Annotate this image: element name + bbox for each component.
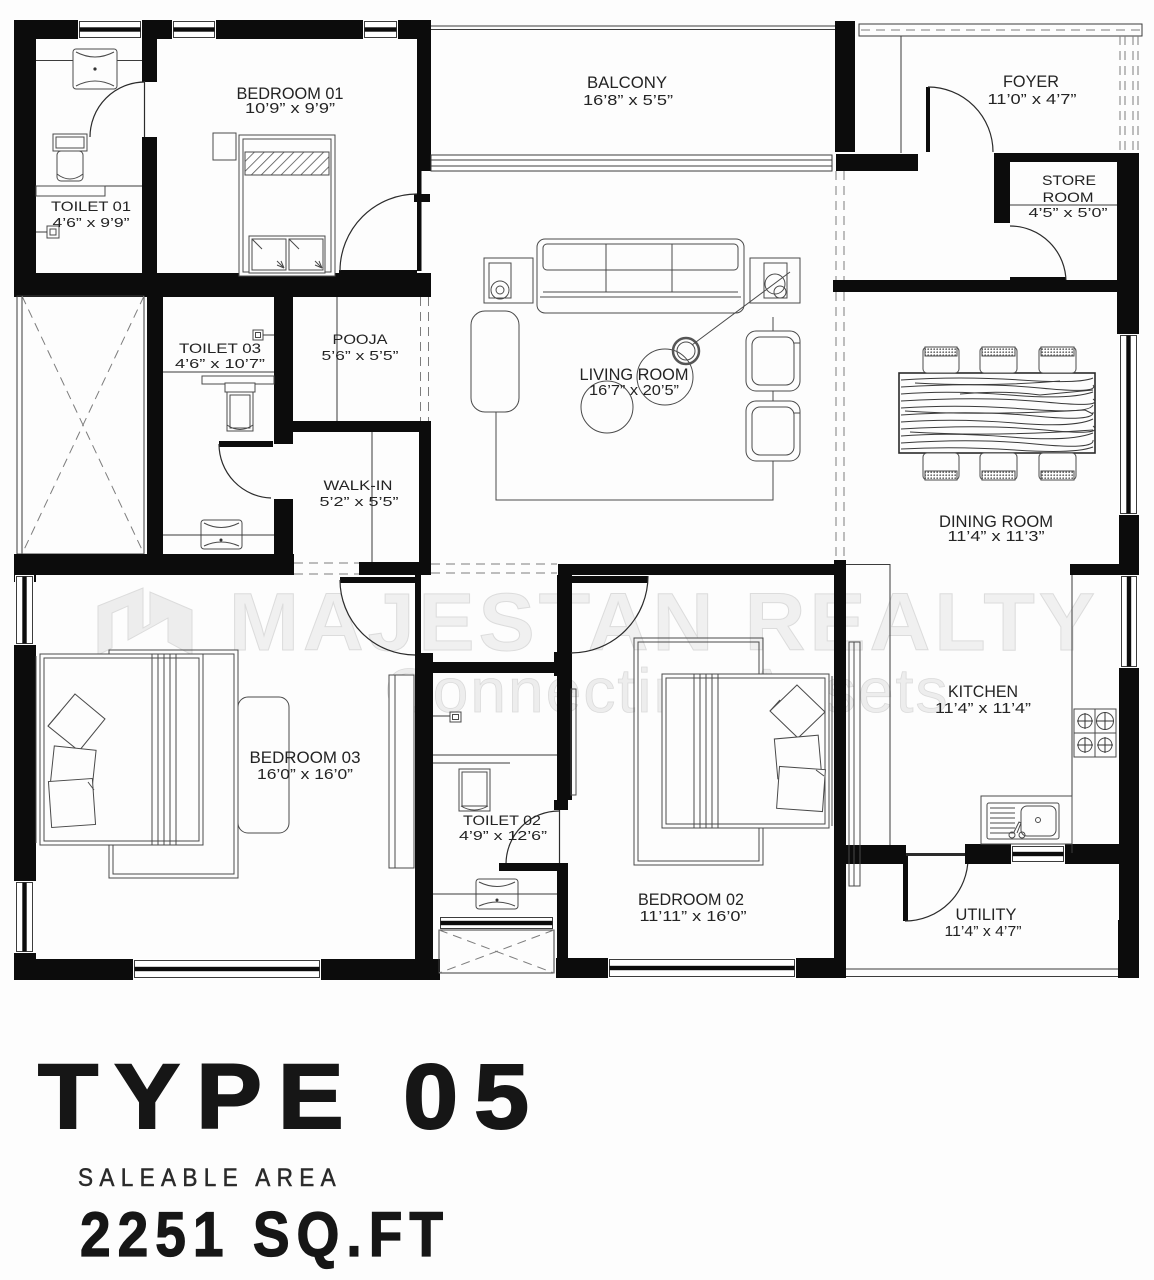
svg-text:MAJESTAN REALTY: MAJESTAN REALTY: [229, 577, 1099, 668]
svg-text:16’0” x 16’0”: 16’0” x 16’0”: [257, 766, 353, 783]
svg-text:UTILITY: UTILITY: [956, 905, 1017, 924]
svg-text:KITCHEN: KITCHEN: [948, 682, 1018, 701]
svg-text:16’7” x 20’5”: 16’7” x 20’5”: [589, 382, 679, 399]
svg-text:11’4” x 11’4”: 11’4” x 11’4”: [935, 700, 1031, 717]
svg-text:4’5” x 5’0”: 4’5” x 5’0”: [1029, 205, 1108, 220]
svg-text:POOJA: POOJA: [333, 331, 389, 347]
svg-text:4’6” x 10’7”: 4’6” x 10’7”: [175, 356, 265, 371]
svg-text:SALEABLE AREA: SALEABLE AREA: [78, 1164, 342, 1192]
svg-text:BEDROOM 03: BEDROOM 03: [250, 748, 361, 767]
svg-text:ROOM: ROOM: [1043, 189, 1094, 205]
svg-text:TOILET 02: TOILET 02: [463, 812, 541, 828]
svg-text:5’6” x 5’5”: 5’6” x 5’5”: [322, 348, 399, 363]
svg-text:TYPE 05: TYPE 05: [38, 1046, 545, 1148]
svg-text:4’6” x 9’9”: 4’6” x 9’9”: [53, 215, 130, 230]
svg-text:10’9” x 9’9”: 10’9” x 9’9”: [245, 100, 335, 117]
svg-text:STORE: STORE: [1042, 172, 1096, 188]
svg-text:11’11” x 16’0”: 11’11” x 16’0”: [640, 908, 747, 925]
svg-text:2251 SQ.FT: 2251 SQ.FT: [80, 1200, 450, 1270]
svg-text:11’0” x 4’7”: 11’0” x 4’7”: [988, 91, 1077, 108]
svg-text:TOILET 01: TOILET 01: [51, 198, 131, 214]
svg-text:11’4” x 11’3”: 11’4” x 11’3”: [948, 528, 1045, 545]
svg-text:FOYER: FOYER: [1003, 72, 1059, 91]
svg-text:BEDROOM 02: BEDROOM 02: [638, 890, 744, 909]
svg-text:5’2” x 5’5”: 5’2” x 5’5”: [320, 494, 399, 509]
svg-text:TOILET 03: TOILET 03: [179, 340, 261, 356]
svg-text:4’9” x 12’6”: 4’9” x 12’6”: [459, 828, 547, 843]
svg-text:BALCONY: BALCONY: [587, 73, 667, 92]
svg-text:WALK-IN: WALK-IN: [324, 477, 393, 493]
svg-text:16’8” x 5’5”: 16’8” x 5’5”: [583, 92, 673, 109]
svg-text:11’4” x 4’7”: 11’4” x 4’7”: [945, 923, 1022, 940]
